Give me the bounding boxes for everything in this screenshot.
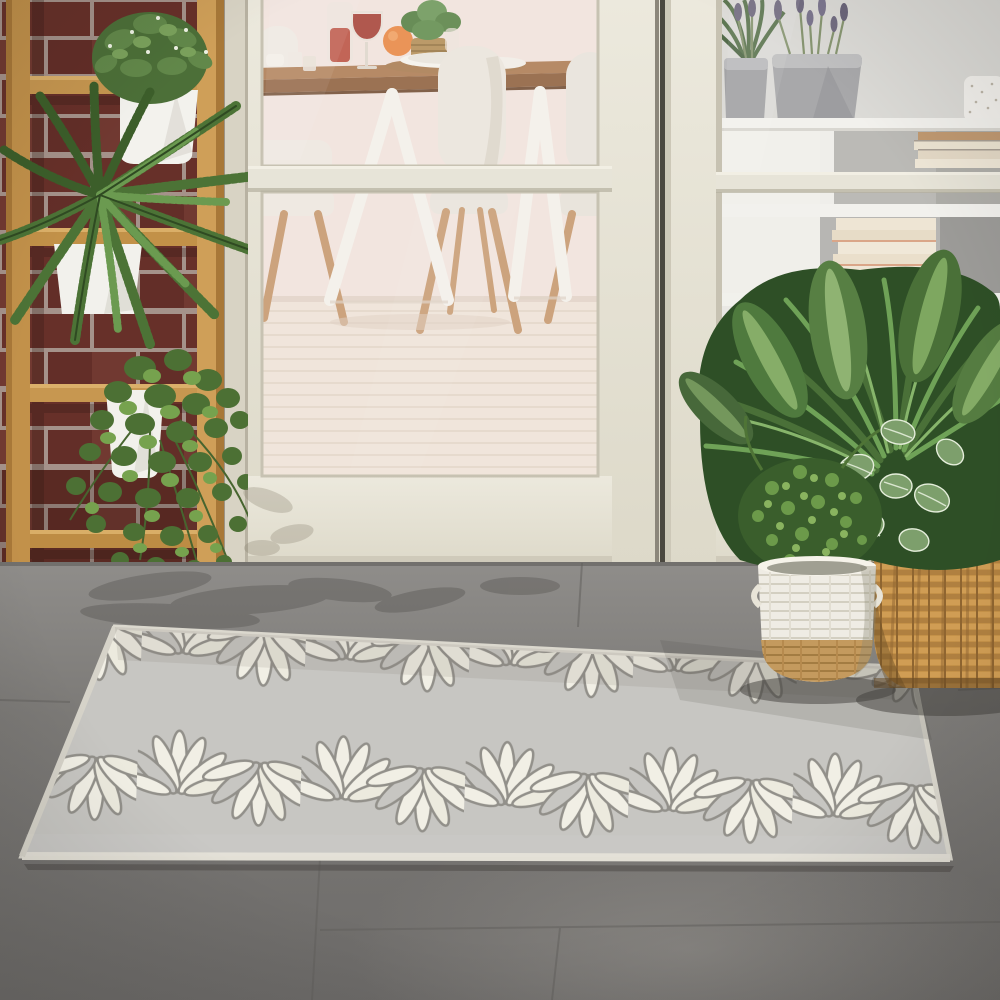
scene-canvas xyxy=(0,0,1000,1000)
photo-scene xyxy=(0,0,1000,1000)
vignette-overlay xyxy=(0,0,1000,1000)
